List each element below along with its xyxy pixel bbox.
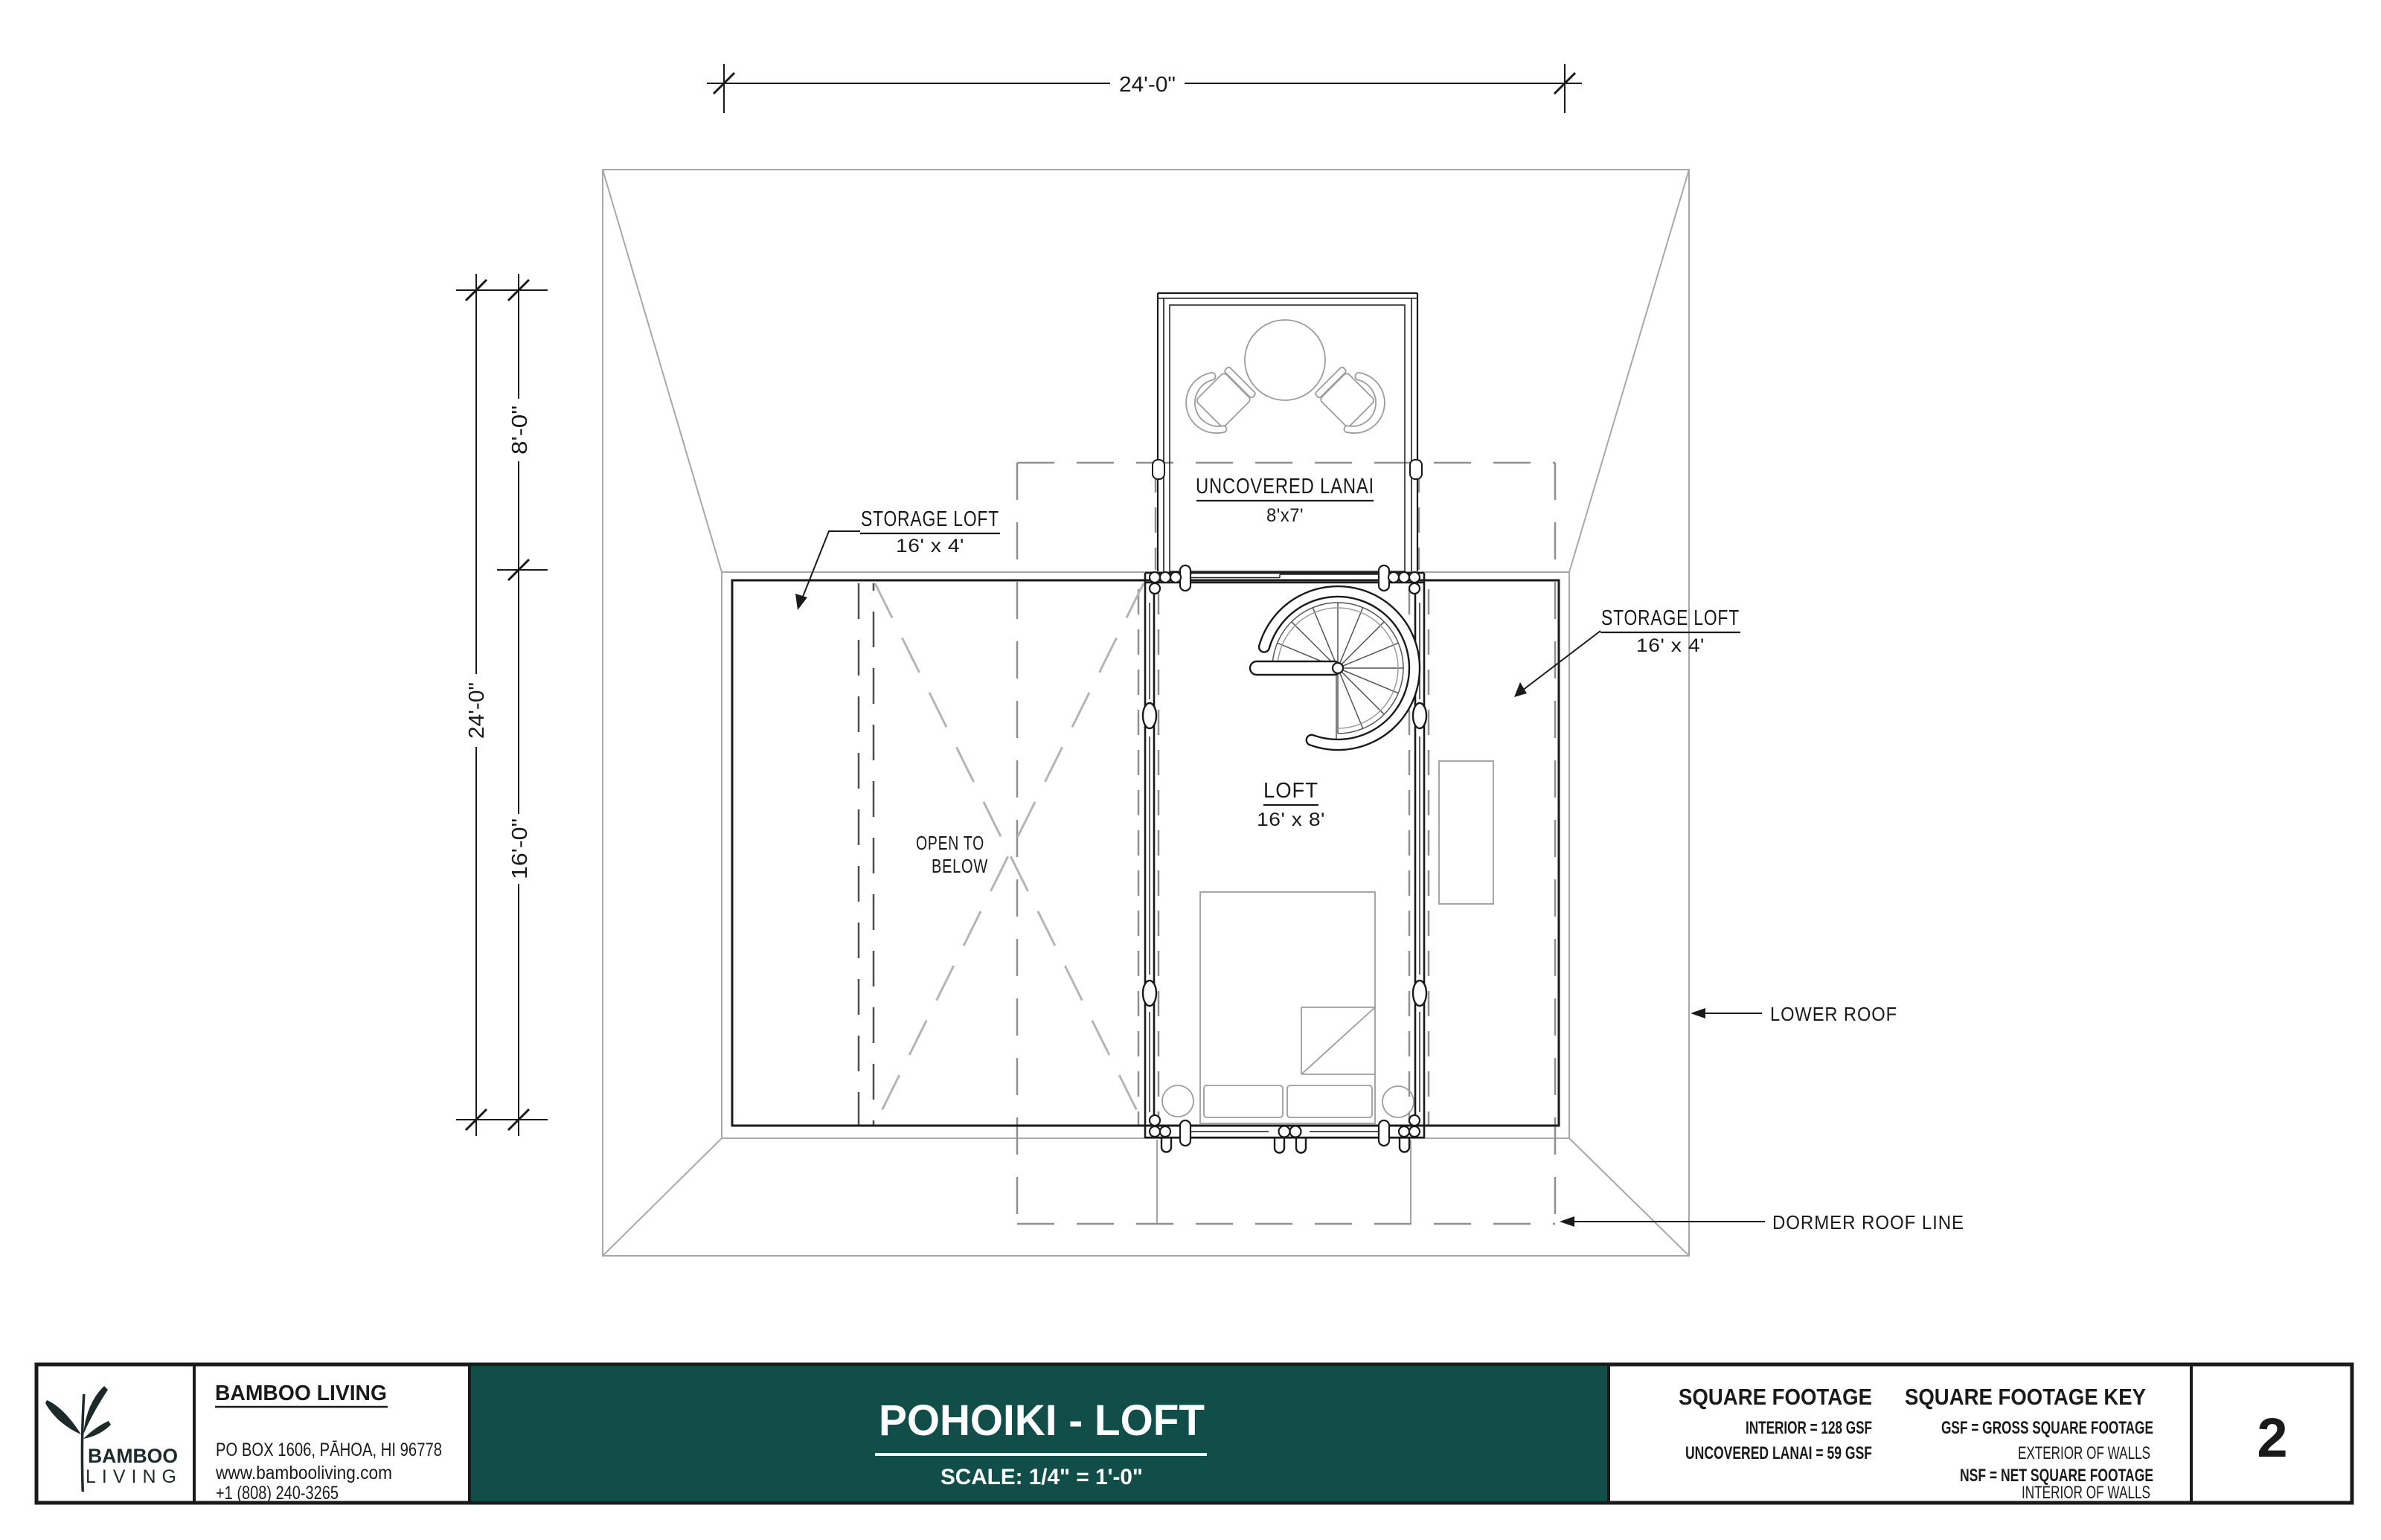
svg-text:STORAGE LOFT: STORAGE LOFT (861, 507, 999, 531)
svg-text:STORAGE LOFT: STORAGE LOFT (1601, 606, 1740, 630)
svg-text:BELOW: BELOW (932, 855, 988, 877)
svg-text:OPEN TO: OPEN TO (916, 832, 984, 854)
svg-text:24'-0": 24'-0" (465, 682, 489, 739)
svg-text:POHOIKI - LOFT: POHOIKI - LOFT (879, 1396, 1205, 1445)
svg-text:16' x 4': 16' x 4' (1636, 635, 1705, 656)
svg-text:8'-0": 8'-0" (508, 405, 532, 455)
svg-text:16'-0": 16'-0" (508, 818, 532, 879)
svg-text:SQUARE FOOTAGE KEY: SQUARE FOOTAGE KEY (1905, 1384, 2146, 1410)
svg-text:EXTERIOR OF WALLS: EXTERIOR OF WALLS (2018, 1443, 2150, 1463)
svg-text:24'-0": 24'-0" (1119, 73, 1176, 97)
svg-text:INTERIOR OF WALLS: INTERIOR OF WALLS (2022, 1483, 2150, 1503)
svg-text:LOWER ROOF: LOWER ROOF (1770, 1003, 1897, 1025)
svg-text:+1 (808) 240-3265: +1 (808) 240-3265 (216, 1483, 339, 1504)
svg-text:BAMBOO LIVING: BAMBOO LIVING (215, 1382, 387, 1405)
svg-text:8'x7': 8'x7' (1266, 505, 1304, 526)
svg-text:16' x 4': 16' x 4' (896, 536, 964, 556)
svg-text:16' x 8': 16' x 8' (1257, 809, 1325, 830)
svg-text:GSF = GROSS SQUARE FOOTAGE: GSF = GROSS SQUARE FOOTAGE (1941, 1418, 2153, 1438)
svg-text:LOFT: LOFT (1263, 779, 1318, 803)
svg-text:PO BOX 1606, PĀHOA, HI 96778: PO BOX 1606, PĀHOA, HI 96778 (216, 1440, 442, 1460)
svg-text:SQUARE FOOTAGE: SQUARE FOOTAGE (1679, 1384, 1872, 1410)
svg-text:www.bambooliving.com: www.bambooliving.com (215, 1463, 392, 1483)
svg-text:UNCOVERED LANAI: UNCOVERED LANAI (1196, 475, 1374, 498)
svg-text:INTERIOR = 128 GSF: INTERIOR = 128 GSF (1746, 1418, 1872, 1438)
svg-text:UNCOVERED LANAI = 59 GSF: UNCOVERED LANAI = 59 GSF (1685, 1443, 1872, 1463)
svg-text:DORMER ROOF LINE: DORMER ROOF LINE (1772, 1211, 1964, 1233)
svg-text:SCALE: 1/4" = 1'-0": SCALE: 1/4" = 1'-0" (940, 1465, 1143, 1489)
svg-text:BAMBOO: BAMBOO (88, 1445, 178, 1467)
svg-text:2: 2 (2257, 1407, 2287, 1469)
